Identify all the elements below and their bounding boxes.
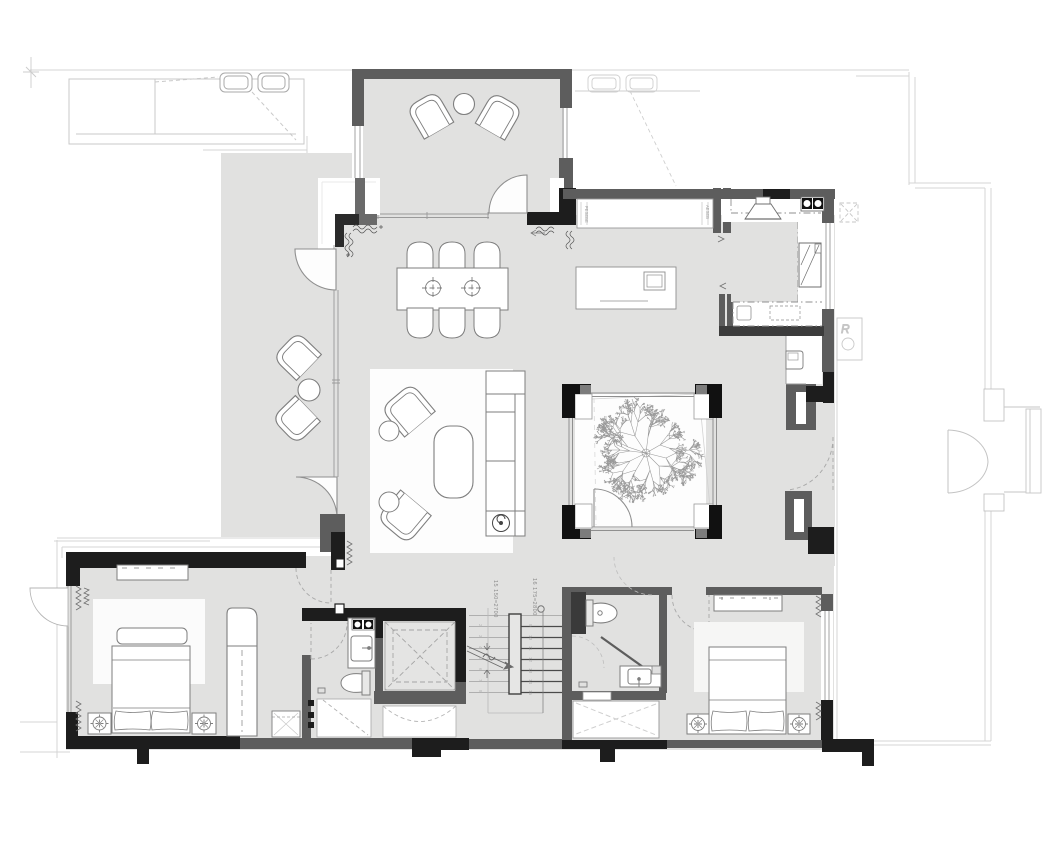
svg-text:AESEB: AESEB [705, 205, 710, 219]
svg-text:13: 13 [528, 668, 533, 674]
svg-text:12: 12 [528, 657, 533, 663]
svg-text:15 150=2700: 15 150=2700 [492, 580, 498, 618]
svg-text:14: 14 [528, 679, 533, 685]
svg-text:10: 10 [528, 635, 533, 641]
svg-text:15: 15 [528, 690, 533, 696]
svg-text:16 175=2800: 16 175=2800 [531, 578, 537, 616]
svg-text:PESEBE: PESEBE [584, 206, 589, 223]
svg-text:11: 11 [528, 646, 533, 651]
svg-text:R: R [841, 322, 850, 336]
